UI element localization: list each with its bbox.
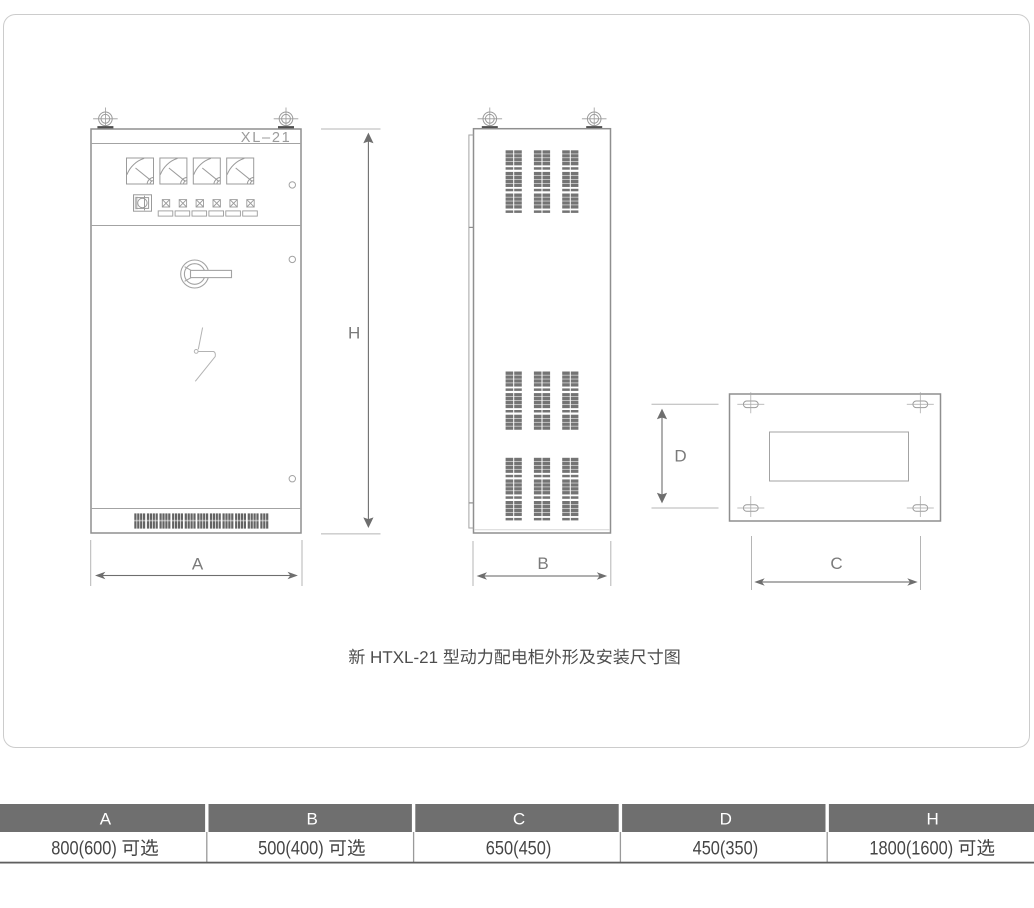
svg-text:650(450): 650(450)	[486, 837, 552, 859]
svg-text:450(350): 450(350)	[693, 837, 759, 859]
svg-text:A: A	[100, 809, 112, 828]
svg-text:H: H	[926, 809, 938, 828]
svg-text:C: C	[830, 554, 842, 573]
svg-text:B: B	[537, 554, 548, 573]
svg-text:A: A	[192, 555, 204, 574]
svg-text:C: C	[513, 809, 525, 828]
svg-text:D: D	[674, 447, 686, 466]
svg-text:1800(1600): 1800(1600)	[869, 837, 953, 859]
svg-text:500(400): 500(400)	[258, 837, 324, 859]
svg-text:XL–21: XL–21	[241, 130, 292, 146]
svg-text:800(600): 800(600)	[51, 837, 117, 859]
svg-text:H: H	[348, 323, 360, 342]
svg-text:B: B	[307, 809, 318, 828]
svg-text:D: D	[720, 809, 732, 828]
